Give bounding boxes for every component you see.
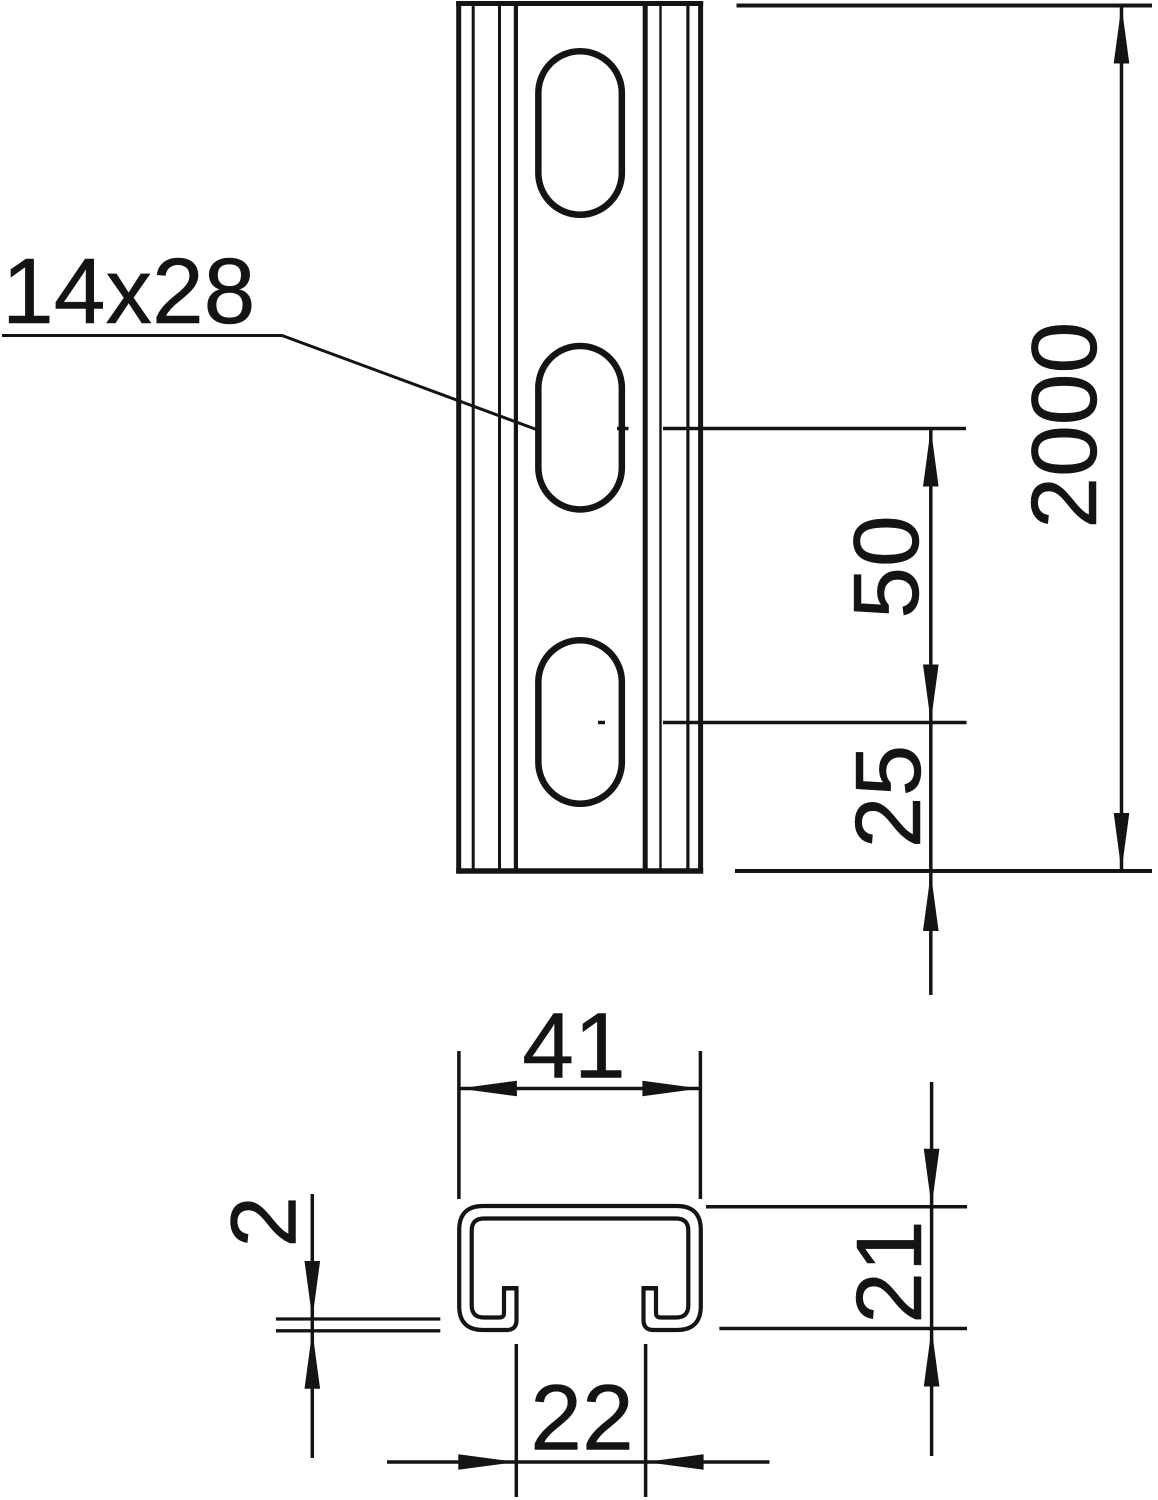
svg-text:22: 22 [530, 1366, 633, 1470]
svg-text:14x28: 14x28 [2, 239, 255, 343]
svg-text:25: 25 [836, 745, 940, 848]
svg-text:21: 21 [837, 1220, 941, 1323]
svg-text:2: 2 [212, 1196, 316, 1248]
svg-text:2000: 2000 [1012, 322, 1116, 529]
svg-text:41: 41 [522, 994, 625, 1098]
svg-text:50: 50 [834, 515, 938, 618]
